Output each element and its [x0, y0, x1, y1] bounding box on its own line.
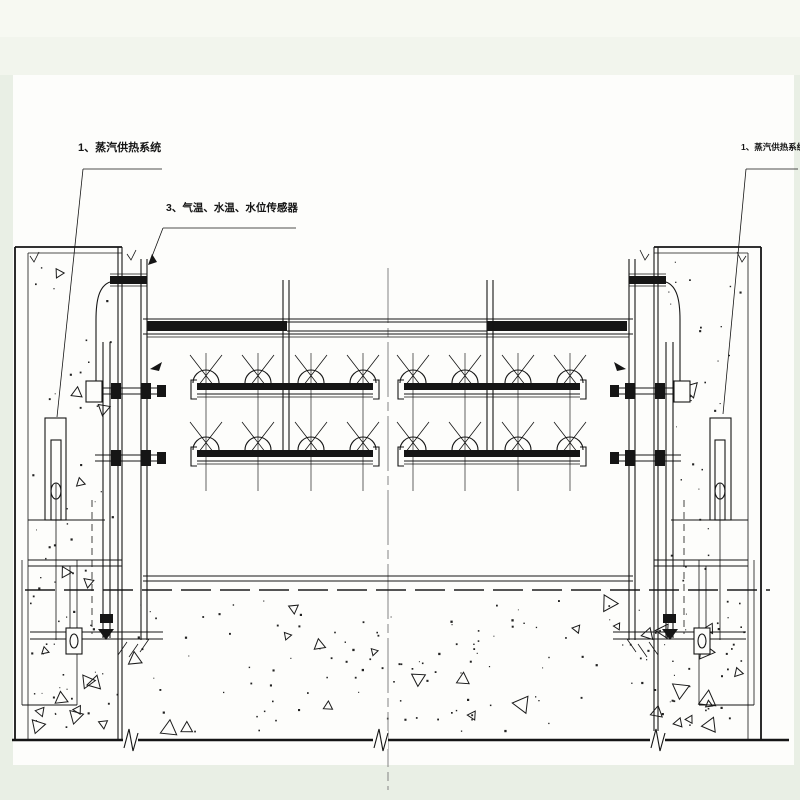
label-steam-right: 1、蒸汽供热系统: [741, 142, 800, 152]
label-sensors: 3、气温、水温、水位传感器: [166, 201, 298, 214]
label-steam-left: 1、蒸汽供热系统: [78, 140, 161, 154]
top-band-light: [0, 0, 800, 37]
gate-steam-heating-drawing: 1、蒸汽供热系统 3、气温、水温、水位传感器 1、蒸汽供热系统: [0, 0, 800, 800]
top-band: [0, 37, 800, 75]
engineering-drawing-page: 1、蒸汽供热系统 3、气温、水温、水位传感器 1、蒸汽供热系统: [0, 0, 800, 800]
